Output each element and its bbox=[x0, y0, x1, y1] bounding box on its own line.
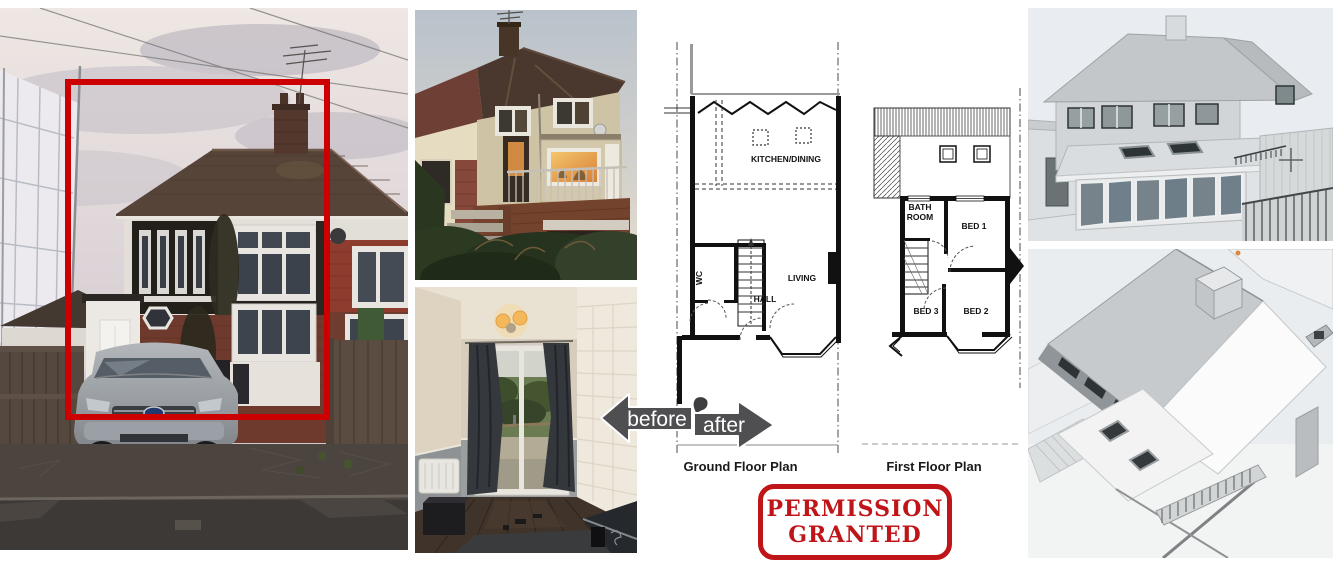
satellite-dish-icon bbox=[330, 228, 346, 244]
wall-fin bbox=[1296, 407, 1318, 477]
hexagon-window bbox=[144, 308, 172, 328]
stamp-line-1: PERMISSION bbox=[766, 496, 943, 522]
after-arrow: after bbox=[693, 396, 774, 449]
bath-label-1: BATH bbox=[909, 202, 932, 212]
chimney-breast bbox=[828, 252, 838, 284]
driveway-and-road bbox=[0, 444, 408, 550]
ceiling-light bbox=[494, 304, 528, 338]
left-gable-windows bbox=[132, 221, 218, 314]
green-bin bbox=[358, 308, 384, 342]
living-label: LIVING bbox=[788, 273, 817, 283]
walls bbox=[677, 96, 841, 404]
rear-photo-graphic bbox=[415, 10, 637, 280]
chimney bbox=[497, 22, 521, 56]
bed2-label: BED 2 bbox=[963, 306, 988, 316]
before-label: before bbox=[627, 408, 687, 431]
render-rear-view bbox=[1028, 8, 1333, 241]
rear-photo bbox=[415, 10, 637, 280]
extension-zigzag bbox=[698, 102, 836, 114]
radiator bbox=[419, 459, 459, 493]
wc-label: WC bbox=[694, 271, 704, 285]
ground-floor-caption: Ground Floor Plan bbox=[638, 459, 843, 474]
chimney bbox=[1166, 16, 1186, 40]
bay-windows bbox=[890, 334, 1012, 356]
before-arrow: before bbox=[601, 394, 692, 442]
bed1-label: BED 1 bbox=[961, 221, 986, 231]
black-box bbox=[423, 497, 469, 535]
bath-label-2: ROOM bbox=[907, 212, 933, 222]
rooflight bbox=[796, 128, 811, 143]
stamp-line-2: GRANTED bbox=[788, 522, 921, 548]
permission-granted-stamp: PERMISSION GRANTED bbox=[758, 484, 952, 560]
upper-bay-window bbox=[232, 225, 316, 301]
door-swings bbox=[690, 300, 794, 340]
chimney-triangle bbox=[1010, 248, 1024, 284]
front-photo bbox=[0, 8, 408, 550]
render-aerial-graphic bbox=[1028, 249, 1333, 558]
bed3-label: BED 3 bbox=[913, 306, 938, 316]
stairs bbox=[904, 240, 928, 294]
after-label: after bbox=[703, 414, 745, 437]
hall-label: HALL bbox=[754, 294, 777, 304]
skylight bbox=[1120, 146, 1154, 158]
first-floor-caption: First Floor Plan bbox=[848, 459, 1020, 474]
bay-window bbox=[770, 337, 838, 357]
door-swings bbox=[924, 241, 974, 310]
rooflight bbox=[753, 130, 768, 145]
front-photo-graphic bbox=[0, 8, 408, 550]
room-labels: KITCHEN/DINING LIVING HALL WC bbox=[694, 154, 821, 304]
first-floor-plan: BATH ROOM BED 1 BED 3 BED 2 bbox=[862, 88, 1034, 460]
planning-collage: KITCHEN/DINING LIVING HALL WC Ground Flo… bbox=[0, 0, 1333, 576]
kitchen-dining-label: KITCHEN/DINING bbox=[751, 154, 821, 164]
before-after-arrows: before after bbox=[596, 388, 782, 456]
stairs bbox=[738, 238, 764, 326]
skylight bbox=[1168, 142, 1202, 154]
render-aerial-view bbox=[1028, 249, 1333, 558]
render-rear-graphic bbox=[1028, 8, 1333, 241]
first-floor-plan-drawing: BATH ROOM BED 1 BED 3 BED 2 bbox=[862, 88, 1034, 460]
